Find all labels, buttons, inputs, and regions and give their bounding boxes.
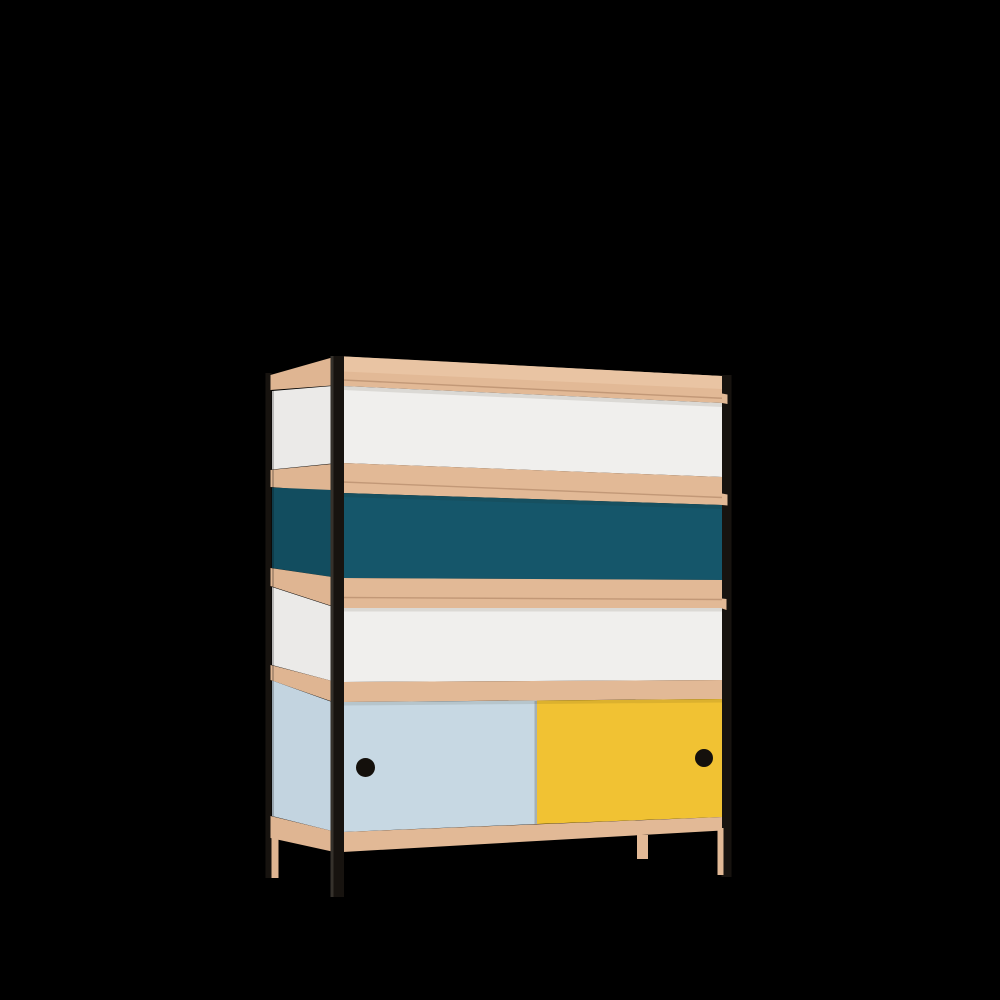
white-panel-row-3 <box>343 608 722 682</box>
front-left-post-highlight <box>331 356 334 897</box>
centre-front-wood-leg <box>637 835 648 859</box>
front-right-wood-leg <box>718 828 724 875</box>
rail-tip-top <box>722 394 728 405</box>
front-shelf-band-4 <box>343 680 722 702</box>
side-white-panel-top <box>272 386 332 470</box>
left-door-handle <box>356 758 375 777</box>
rail-tip-lower <box>722 599 727 611</box>
scene-stage <box>0 0 1000 1000</box>
cabinet-render <box>0 0 1000 1000</box>
right-door-handle <box>695 749 713 767</box>
door-divider-shadow <box>535 701 538 824</box>
side-panel-edge-shadow <box>272 390 274 816</box>
rail-tip-middle <box>722 494 728 506</box>
front-shelf-band-3 <box>343 578 722 608</box>
side-blue-panel <box>272 681 332 832</box>
front-right-post <box>722 375 732 877</box>
white-panel-row-3-shadow <box>343 608 722 612</box>
rear-left-wood-leg <box>272 835 279 878</box>
right-sliding-door-yellow <box>537 699 722 824</box>
rear-left-post <box>266 373 272 878</box>
side-teal-panel <box>272 488 332 578</box>
